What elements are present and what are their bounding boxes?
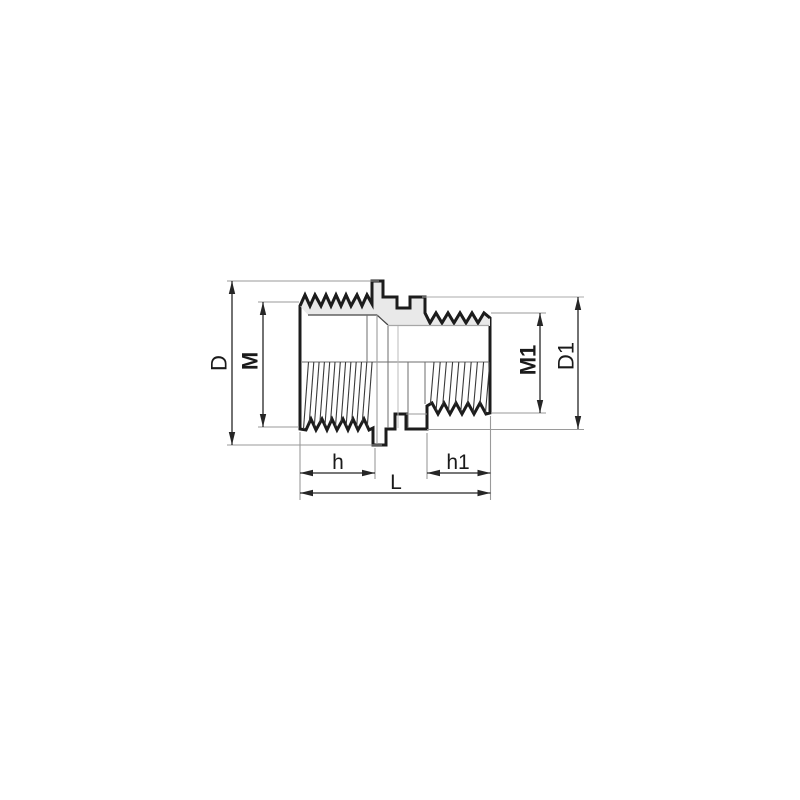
fitting-body — [300, 281, 490, 445]
dimension-h1: h1 — [427, 416, 491, 500]
arrowhead — [478, 470, 491, 476]
arrowhead — [300, 490, 313, 496]
dimension-label-h1: h1 — [446, 451, 469, 474]
dimension-M: M — [238, 302, 300, 427]
dimension-label-M: M — [238, 352, 263, 370]
arrowhead — [575, 416, 581, 429]
dimension-label-D1: D1 — [554, 342, 579, 370]
arrowhead — [537, 313, 543, 326]
arrowhead — [260, 414, 266, 427]
arrowhead — [260, 302, 266, 315]
arrowhead — [478, 490, 491, 496]
dimension-h: h — [300, 432, 375, 500]
dimension-label-h: h — [332, 451, 344, 474]
dimension-L: L — [300, 471, 491, 496]
fitting-technical-drawing: D M M1 D1 — [0, 0, 800, 800]
arrowhead — [300, 470, 313, 476]
dimension-M1: M1 — [491, 313, 546, 413]
arrowhead — [575, 297, 581, 310]
dimension-label-D: D — [207, 355, 232, 371]
dimension-label-L: L — [390, 471, 402, 494]
arrowhead — [427, 470, 440, 476]
arrowhead — [229, 281, 235, 294]
arrowhead — [537, 400, 543, 413]
dimension-label-M1: M1 — [516, 345, 541, 376]
arrowhead — [362, 470, 375, 476]
arrowhead — [229, 432, 235, 445]
drawing-canvas: D M M1 D1 — [0, 0, 800, 800]
